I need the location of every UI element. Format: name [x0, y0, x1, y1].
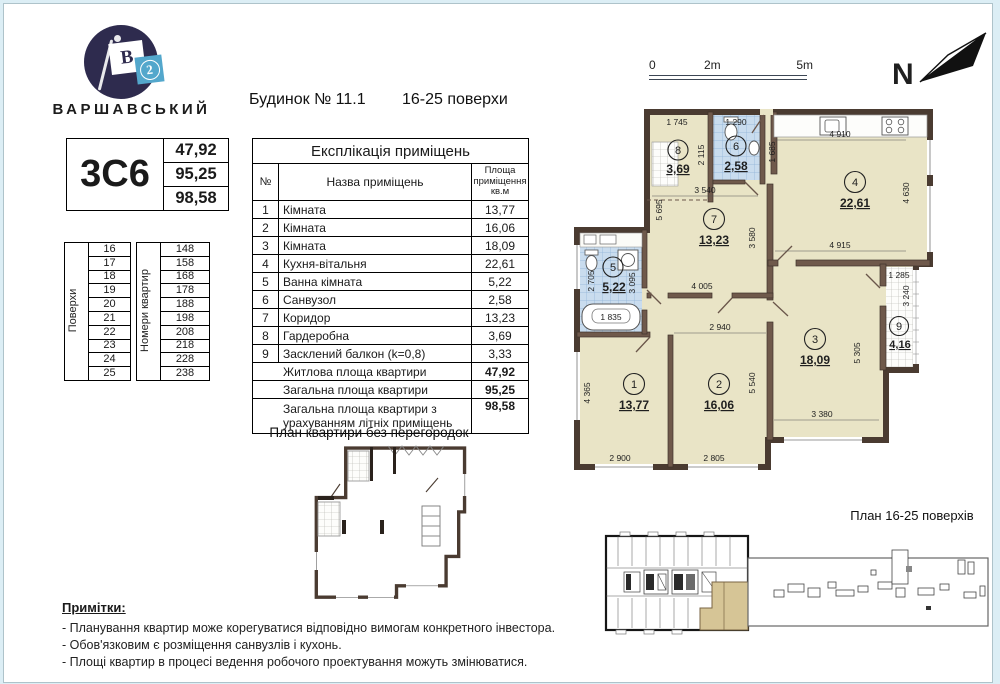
apartment-number: 198: [161, 311, 210, 325]
svg-text:8: 8: [675, 145, 681, 157]
floor-number: 19: [89, 284, 131, 298]
living-area-value: 47,92: [164, 139, 229, 163]
room-area: 5,22: [472, 273, 529, 291]
table-row: 5Ванна кімната5,22: [253, 273, 529, 291]
note-item: - Площі квартир в процесі ведення робочо…: [62, 655, 527, 669]
room-name: Кухня-вітальня: [279, 255, 472, 273]
svg-text:18,09: 18,09: [800, 353, 830, 367]
svg-text:13,77: 13,77: [619, 398, 649, 412]
svg-text:5 540: 5 540: [747, 372, 757, 394]
floor-number: 25: [89, 367, 131, 381]
room-area: 16,06: [472, 219, 529, 237]
room-area: 3,33: [472, 345, 529, 363]
svg-text:1 285: 1 285: [888, 270, 910, 280]
svg-text:3,69: 3,69: [666, 162, 690, 176]
row-num: 1: [253, 201, 279, 219]
apartment-number: 208: [161, 325, 210, 339]
svg-text:2,58: 2,58: [724, 159, 748, 173]
explication-title: Експлікація приміщень: [253, 139, 529, 164]
open-plan-drawing: [296, 442, 501, 607]
scale-bar: 0 2m 5m: [649, 58, 807, 84]
page-stage: В 2 ВАРШАВСЬКИЙ 3С6 47,92 95,25 98,58 16…: [0, 0, 1000, 684]
floor-number: 24: [89, 353, 131, 367]
room-area: 3,69: [472, 327, 529, 345]
svg-text:5: 5: [610, 262, 616, 274]
svg-text:4 365: 4 365: [582, 382, 592, 404]
row-num: 2: [253, 219, 279, 237]
open-plan-title: План квартири без перегородок: [259, 425, 479, 440]
table-row: 3Кімната18,09: [253, 237, 529, 255]
svg-text:3 380: 3 380: [811, 409, 833, 419]
svg-text:1 835: 1 835: [600, 312, 622, 322]
explication-table: Експлікація приміщень № Назва приміщень …: [252, 138, 529, 434]
table-row: 2Кімната16,06: [253, 219, 529, 237]
svg-text:22,61: 22,61: [840, 196, 870, 210]
svg-text:5,22: 5,22: [602, 280, 626, 294]
col-header-area: Площа приміщення кв.м: [472, 164, 529, 201]
room-area: 22,61: [472, 255, 529, 273]
scale-bar-line: [649, 75, 807, 80]
apartment-number: 218: [161, 339, 210, 353]
table-row: № Назва приміщень Площа приміщення кв.м: [253, 164, 529, 201]
north-label: N: [892, 58, 914, 91]
svg-text:1 745: 1 745: [666, 117, 688, 127]
col-header-name: Назва приміщень: [279, 164, 472, 201]
summary-area: 47,92: [472, 363, 529, 381]
scale-five: 5m: [796, 58, 813, 72]
svg-text:13,23: 13,23: [699, 233, 729, 247]
table-row: 1Кімната13,77: [253, 201, 529, 219]
svg-text:5 695: 5 695: [654, 199, 664, 221]
room-name: Ванна кімната: [279, 273, 472, 291]
floor-number: 23: [89, 339, 131, 353]
svg-text:4 910: 4 910: [829, 129, 851, 139]
svg-text:2 115: 2 115: [696, 144, 706, 165]
floor-number: 21: [89, 311, 131, 325]
room-name: Засклений балкон (k=0,8): [279, 345, 472, 363]
apartment-number: 178: [161, 284, 210, 298]
apartment-type-code: 3С6: [67, 139, 164, 211]
note-item: - Обов'язковим є розміщення санвузлів і …: [62, 638, 342, 652]
svg-text:4 630: 4 630: [901, 182, 911, 204]
svg-text:3 580: 3 580: [747, 227, 757, 249]
room-name: Кімната: [279, 237, 472, 255]
floors-column-label: Поверхи: [67, 243, 79, 378]
row-num: 3: [253, 237, 279, 255]
apartment-number: 188: [161, 298, 210, 312]
notes-title: Примітки:: [62, 600, 126, 615]
floors-range-title: 16-25 поверхи: [402, 91, 508, 109]
table-row: Загальна площа квартири95,25: [253, 381, 529, 399]
key-plan-terrace: [748, 550, 988, 626]
apartment-type-card: 3С6 47,92 95,25 98,58: [66, 138, 229, 211]
scale-zero: 0: [649, 58, 656, 72]
floor-number: 16: [89, 243, 131, 257]
svg-text:3 095: 3 095: [627, 272, 637, 294]
svg-text:4,16: 4,16: [889, 339, 910, 351]
svg-text:2 705: 2 705: [586, 270, 596, 292]
entry-opening: [760, 109, 773, 115]
table-row: 3С6 47,92: [67, 139, 229, 163]
row-num: 8: [253, 327, 279, 345]
brand-logo-icon: В 2: [84, 25, 158, 99]
table-row: Житлова площа квартири47,92: [253, 363, 529, 381]
row-num: 7: [253, 309, 279, 327]
room-name: Коридор: [279, 309, 472, 327]
table-row: 4Кухня-вітальня22,61: [253, 255, 529, 273]
brand-wordmark: ВАРШАВСЬКИЙ: [44, 101, 219, 118]
apartment-number: 168: [161, 270, 210, 284]
apartment-number: 158: [161, 256, 210, 270]
key-plan-title: План 16-25 поверхів: [832, 508, 992, 523]
room-name: Санвузол: [279, 291, 472, 309]
flag-letter: В: [119, 46, 134, 69]
svg-text:2: 2: [716, 379, 722, 391]
full-area-value: 98,58: [164, 187, 229, 211]
apartments-column-label: Номери квартир: [139, 243, 151, 378]
svg-text:6: 6: [733, 141, 739, 153]
svg-text:7: 7: [711, 214, 717, 226]
summary-area: 98,58: [472, 399, 529, 434]
room-area: 13,77: [472, 201, 529, 219]
row-num: 9: [253, 345, 279, 363]
table-row: Експлікація приміщень: [253, 139, 529, 164]
room-area: 2,58: [472, 291, 529, 309]
north-arrow: N: [886, 20, 994, 94]
flag-number-badge: 2: [134, 54, 164, 84]
flag-number: 2: [138, 58, 160, 80]
flag-pole-tip-icon: [114, 35, 121, 42]
svg-text:3: 3: [812, 334, 818, 346]
svg-text:16,06: 16,06: [704, 398, 734, 412]
row-num: 6: [253, 291, 279, 309]
room-area: 18,09: [472, 237, 529, 255]
svg-text:5 305: 5 305: [852, 342, 862, 364]
svg-text:9: 9: [896, 321, 902, 333]
svg-text:4 005: 4 005: [691, 281, 713, 291]
svg-text:1 290: 1 290: [725, 117, 747, 127]
svg-text:1 685: 1 685: [767, 141, 777, 163]
key-plan-drawing: [596, 522, 996, 646]
room-area: 13,23: [472, 309, 529, 327]
svg-text:3 540: 3 540: [694, 185, 716, 195]
floor-number: 18: [89, 270, 131, 284]
floor-number: 22: [89, 325, 131, 339]
row-num: 4: [253, 255, 279, 273]
svg-text:2 805: 2 805: [703, 453, 725, 463]
svg-text:2 900: 2 900: [609, 453, 631, 463]
note-item: - Планування квартир може корегуватися в…: [62, 621, 555, 635]
table-row: 6Санвузол2,58: [253, 291, 529, 309]
col-header-num: №: [253, 164, 279, 201]
table-row: 9Засклений балкон (k=0,8)3,33: [253, 345, 529, 363]
svg-text:4: 4: [852, 177, 858, 189]
key-plan-building: [606, 532, 748, 634]
svg-text:1: 1: [631, 379, 637, 391]
total-area-value: 95,25: [164, 163, 229, 187]
room-name: Кімната: [279, 201, 472, 219]
table-row: 8Гардеробна3,69: [253, 327, 529, 345]
building-title: Будинок № 11.1: [249, 91, 366, 109]
svg-text:2 940: 2 940: [709, 322, 731, 332]
row-num: 5: [253, 273, 279, 291]
apartment-number: 228: [161, 353, 210, 367]
summary-name: Житлова площа квартири: [253, 363, 472, 381]
room-name: Гардеробна: [279, 327, 472, 345]
summary-name: Загальна площа квартири: [253, 381, 472, 399]
apartment-number: 238: [161, 367, 210, 381]
svg-text:3 240: 3 240: [901, 285, 911, 307]
svg-text:4 915: 4 915: [829, 240, 851, 250]
main-floor-plan: 1 745 1 290 3 540 4 910 4 915 4 005 2 94…: [562, 100, 942, 500]
table-row: 7Коридор13,23: [253, 309, 529, 327]
apartment-number: 148: [161, 243, 210, 257]
room-name: Кімната: [279, 219, 472, 237]
floor-number: 17: [89, 256, 131, 270]
document-page: В 2 ВАРШАВСЬКИЙ 3С6 47,92 95,25 98,58 16…: [3, 3, 993, 683]
summary-area: 95,25: [472, 381, 529, 399]
scale-two: 2m: [704, 58, 721, 72]
floor-number: 20: [89, 298, 131, 312]
